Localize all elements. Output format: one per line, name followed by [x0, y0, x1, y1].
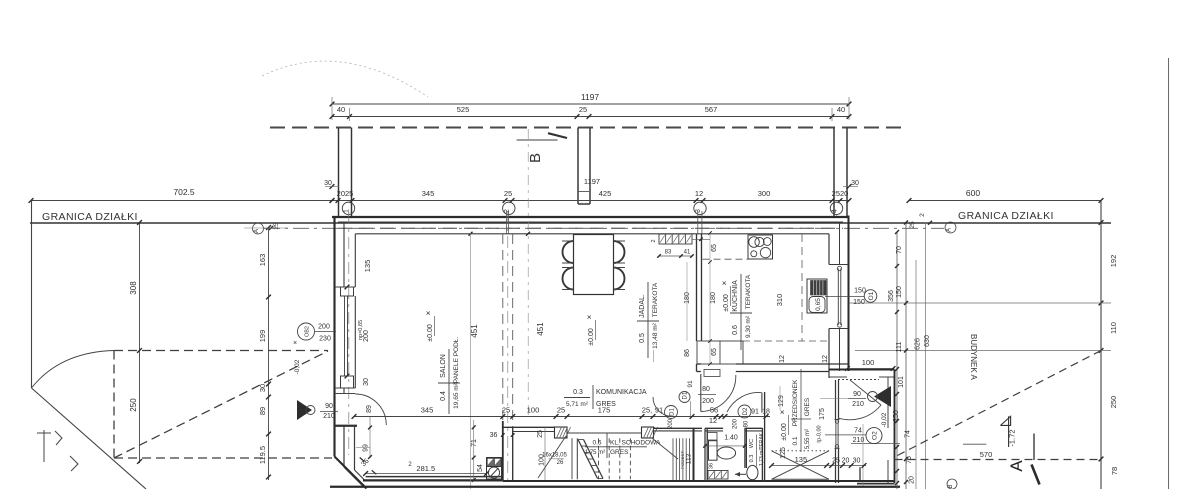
svg-text:600: 600 [966, 188, 980, 198]
svg-text:25: 25 [557, 406, 565, 415]
svg-text:200: 200 [702, 398, 714, 405]
svg-text:78: 78 [1110, 467, 1119, 475]
svg-text:A: A [947, 228, 953, 232]
svg-text:200: 200 [363, 330, 370, 342]
svg-text:PANELE PODŁ.: PANELE PODŁ. [453, 337, 460, 384]
svg-text:345: 345 [422, 189, 435, 198]
svg-text:150: 150 [853, 299, 865, 306]
svg-text:1197: 1197 [581, 92, 600, 102]
svg-text:100: 100 [862, 358, 875, 367]
svg-text:KUCHNIA: KUCHNIA [732, 280, 739, 312]
svg-text:25: 25 [909, 221, 916, 229]
svg-text:2: 2 [651, 239, 657, 242]
svg-text:180: 180 [710, 292, 717, 304]
svg-text:1197: 1197 [584, 177, 600, 186]
svg-text:0.6: 0.6 [592, 440, 601, 447]
svg-text:-1.72: -1.72 [1008, 429, 1017, 446]
svg-text:74: 74 [905, 430, 912, 438]
svg-text:O1: O1 [868, 291, 875, 300]
svg-text:PODEST: PODEST [680, 451, 685, 470]
svg-text:×: × [585, 314, 594, 319]
svg-text:86: 86 [684, 349, 691, 357]
svg-text:180: 180 [684, 292, 691, 304]
svg-text:25,: 25, [642, 406, 652, 415]
svg-text:2025: 2025 [337, 189, 354, 198]
svg-text:16x18,05: 16x18,05 [542, 453, 567, 459]
svg-text:192: 192 [1109, 255, 1118, 268]
svg-text:200: 200 [318, 324, 330, 331]
svg-text:JADAL.: JADAL. [639, 294, 646, 318]
svg-text:129: 129 [778, 395, 785, 407]
svg-text:GRES: GRES [804, 397, 811, 416]
svg-text:12: 12 [822, 355, 829, 363]
svg-text:356: 356 [888, 290, 895, 302]
svg-text:0.6: 0.6 [732, 325, 739, 335]
svg-text:13,48 m²: 13,48 m² [652, 322, 659, 348]
svg-text:2: 2 [919, 213, 926, 217]
svg-text:230: 230 [319, 336, 331, 343]
svg-text:WC: WC [749, 439, 755, 448]
svg-text:111: 111 [896, 342, 903, 353]
svg-text:525: 525 [457, 105, 470, 114]
svg-text:±0.00: ±0.00 [427, 324, 434, 342]
svg-text:-0,02: -0,02 [881, 412, 888, 427]
svg-text:210: 210 [323, 413, 335, 420]
svg-text:20: 20 [909, 476, 916, 484]
svg-text:310: 310 [775, 294, 784, 307]
svg-text:1,75 m²: 1,75 m² [585, 450, 605, 456]
svg-text:GRANICA DZIAŁKI: GRANICA DZIAŁKI [42, 211, 138, 223]
svg-text:0.3: 0.3 [749, 455, 755, 463]
svg-text:9,30 m²: 9,30 m² [745, 315, 752, 338]
svg-text:200: 200 [733, 418, 739, 429]
svg-text:83: 83 [665, 250, 672, 256]
svg-text:250: 250 [1109, 396, 1118, 409]
svg-text:5,71 m²: 5,71 m² [566, 401, 589, 408]
svg-text:40: 40 [837, 105, 845, 114]
svg-text:GRANICA DZIAŁKI: GRANICA DZIAŁKI [958, 210, 1054, 222]
svg-text:tp-0,00: tp-0,00 [817, 425, 823, 442]
svg-text:702.5: 702.5 [173, 187, 195, 197]
svg-text:2: 2 [504, 209, 511, 213]
svg-text:25: 25 [537, 430, 544, 438]
svg-text:0.5: 0.5 [639, 333, 646, 343]
svg-text:54: 54 [477, 464, 484, 472]
svg-text:119.5: 119.5 [258, 446, 267, 464]
svg-text:30: 30 [324, 180, 332, 187]
svg-text:99: 99 [363, 444, 370, 452]
svg-text:TERAK.: TERAK. [759, 431, 765, 449]
svg-text:36: 36 [709, 463, 715, 469]
svg-text:425: 425 [599, 189, 612, 198]
svg-text:np=0,85: np=0,85 [358, 320, 364, 340]
svg-text:281.5: 281.5 [416, 464, 435, 473]
svg-text:TERAKOTA: TERAKOTA [652, 282, 659, 317]
svg-text:308: 308 [129, 281, 138, 295]
svg-text:×: × [778, 409, 787, 414]
svg-text:451: 451 [470, 324, 479, 338]
svg-text:36: 36 [490, 432, 498, 439]
svg-text:135: 135 [363, 260, 372, 273]
svg-text:90: 90 [853, 391, 861, 398]
svg-text:D2: D2 [743, 407, 749, 415]
svg-text:80: 80 [744, 420, 750, 427]
svg-text:30: 30 [851, 180, 859, 187]
svg-text:OB2: OB2 [305, 326, 311, 337]
svg-text:±0.00: ±0.00 [723, 294, 730, 312]
svg-text:250: 250 [129, 398, 138, 412]
svg-text:570: 570 [980, 450, 993, 459]
svg-text:0.3: 0.3 [573, 389, 583, 396]
svg-text:101: 101 [898, 376, 905, 388]
svg-text:40: 40 [337, 105, 345, 114]
svg-text:626: 626 [915, 338, 922, 350]
svg-text:80: 80 [702, 386, 710, 393]
svg-text:91: 91 [751, 409, 759, 416]
svg-text:300: 300 [758, 189, 771, 198]
svg-text:1,73 m²: 1,73 m² [759, 449, 765, 466]
svg-text:30: 30 [363, 378, 370, 386]
svg-text:0.1: 0.1 [792, 436, 799, 445]
svg-text:4: 4 [832, 209, 839, 213]
svg-text:41: 41 [684, 250, 691, 256]
svg-text:5,55 m²: 5,55 m² [805, 429, 811, 449]
svg-text:×: × [424, 310, 433, 315]
svg-text:175: 175 [598, 406, 611, 415]
svg-text:×: × [293, 340, 297, 347]
svg-text:65: 65 [711, 348, 718, 356]
svg-text:19,65 m²: 19,65 m² [453, 382, 460, 408]
svg-text:451: 451 [536, 322, 545, 336]
svg-text:TERAKOTA: TERAKOTA [745, 274, 752, 309]
svg-text:KOMUNIKACJA: KOMUNIKACJA [596, 389, 647, 396]
svg-text:±0.00: ±0.00 [588, 328, 595, 346]
svg-text:630: 630 [924, 335, 931, 347]
svg-text:1: 1 [344, 209, 351, 213]
svg-text:0.4: 0.4 [440, 391, 447, 401]
svg-text:A: A [1007, 460, 1026, 472]
svg-text:74: 74 [854, 428, 862, 435]
svg-text:210: 210 [852, 401, 864, 408]
svg-text:18: 18 [762, 409, 770, 416]
svg-text:250: 250 [893, 410, 900, 422]
svg-text:±0.00: ±0.00 [781, 423, 788, 441]
svg-text:D1: D1 [670, 408, 676, 416]
svg-text:70: 70 [896, 246, 903, 254]
svg-text:91: 91 [687, 380, 694, 388]
svg-text:89: 89 [258, 407, 267, 415]
svg-text:26: 26 [557, 460, 564, 466]
svg-text:125: 125 [780, 447, 787, 459]
svg-text:1.40: 1.40 [724, 434, 738, 441]
svg-text:65: 65 [711, 244, 718, 252]
svg-text:D1: D1 [683, 391, 689, 399]
svg-text:O2: O2 [872, 431, 879, 440]
svg-text:25: 25 [504, 189, 512, 198]
svg-text:0,65: 0,65 [815, 298, 822, 311]
svg-text:110: 110 [1109, 322, 1118, 334]
svg-text:SALON: SALON [440, 354, 447, 378]
svg-text:150: 150 [896, 286, 903, 298]
svg-text:200: 200 [668, 418, 674, 429]
svg-text:345: 345 [421, 406, 434, 415]
svg-text:210: 210 [853, 437, 865, 444]
svg-text:12: 12 [695, 189, 703, 198]
svg-text:100: 100 [527, 406, 540, 415]
svg-text:2520: 2520 [832, 189, 849, 198]
svg-text:×: × [720, 280, 729, 285]
svg-text:163: 163 [258, 254, 267, 267]
svg-text:199: 199 [258, 330, 267, 343]
svg-text:25: 25 [502, 406, 510, 415]
svg-text:BUDYNEK A: BUDYNEK A [969, 334, 978, 380]
svg-text:GRES: GRES [610, 449, 629, 456]
svg-text:150: 150 [854, 288, 866, 295]
svg-text:12: 12 [779, 355, 786, 363]
svg-text:25: 25 [579, 105, 587, 114]
svg-text:567: 567 [705, 105, 718, 114]
svg-text:71: 71 [471, 439, 478, 447]
svg-text:90: 90 [325, 403, 333, 410]
svg-text:20: 20 [842, 458, 850, 465]
svg-text:113: 113 [686, 453, 693, 464]
svg-text:89: 89 [366, 405, 373, 413]
svg-text:-0,02: -0,02 [294, 359, 301, 374]
svg-text:KL. SCHODOWA: KL. SCHODOWA [610, 440, 661, 447]
svg-text:A: A [254, 229, 260, 233]
svg-text:B: B [948, 484, 954, 488]
svg-text:B: B [527, 153, 544, 163]
svg-text:3: 3 [695, 209, 702, 213]
svg-text:135: 135 [795, 455, 808, 464]
svg-text:175: 175 [819, 408, 826, 420]
